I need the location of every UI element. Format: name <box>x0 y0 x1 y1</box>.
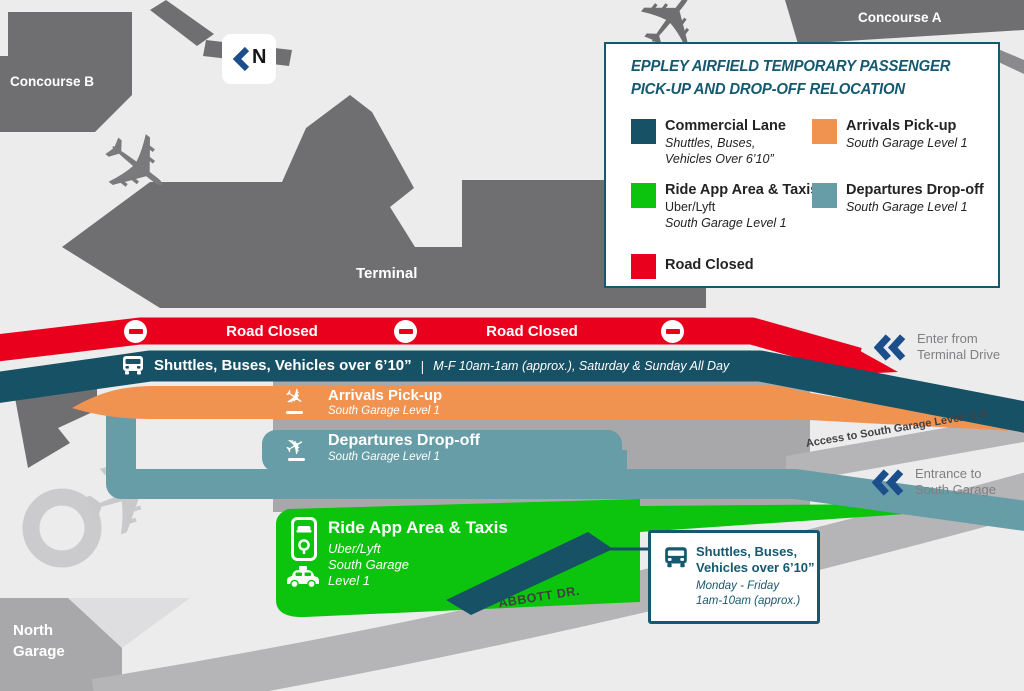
bus-icon <box>121 356 145 375</box>
rideapp-area-sub1: Uber/Lyft <box>328 541 381 556</box>
entrance-line2: South Garage <box>915 482 996 498</box>
commercial-band-divider: | <box>421 358 425 374</box>
no-entry-icon <box>124 320 147 343</box>
enter-from-terminal-text: Enter from Terminal Drive <box>917 331 1000 363</box>
arrivals-band-sub: South Garage Level 1 <box>328 405 440 417</box>
no-entry-icon <box>661 320 684 343</box>
north-indicator: N <box>222 34 276 84</box>
legend-rideapp-label: Ride App Area & Taxis <box>665 182 818 198</box>
entrance-line1: Entrance to <box>915 466 996 482</box>
arrivals-band-label: Arrivals Pick-up <box>328 387 442 404</box>
bus-icon <box>663 547 689 568</box>
north-garage-label-line2: Garage <box>13 641 65 662</box>
callout-line1: Shuttles, Buses, <box>696 544 797 559</box>
commercial-band-label: Shuttles, Buses, Vehicles over 6’10” <box>154 357 412 374</box>
legend-title-line2: PICK-UP AND DROP-OFF RELOCATION <box>631 81 905 99</box>
callout-line2: Vehicles over 6’10” <box>696 560 815 575</box>
taxi-icon <box>286 566 320 589</box>
north-garage-label: North Garage <box>13 620 65 662</box>
legend-commercial-sub2: Vehicles Over 6’10” <box>665 152 774 168</box>
legend-rideapp-sub2: South Garage Level 1 <box>665 216 787 232</box>
commercial-band-hours: M-F 10am-1am (approx.), Saturday & Sunda… <box>433 359 729 373</box>
legend-panel: EPPLEY AIRFIELD TEMPORARY PASSENGER PICK… <box>604 42 1000 288</box>
legend-road-closed-label: Road Closed <box>665 257 754 273</box>
callout-line4: 1am-10am (approx.) <box>696 595 800 607</box>
terminal-label: Terminal <box>356 265 417 282</box>
rideapp-area-label: Ride App Area & Taxis <box>328 518 508 538</box>
airport-relocation-map: ✈ ✈ ✈ ✈ <box>0 0 1024 691</box>
rideapp-area-sub2: South Garage <box>328 557 409 572</box>
entrance-south-garage-text: Entrance to South Garage <box>915 466 996 498</box>
entrance-south-garage-annotation: Entrance to South Garage <box>872 466 996 498</box>
legend-arrivals-label: Arrivals Pick-up <box>846 118 956 134</box>
no-entry-icon <box>394 320 417 343</box>
double-chevron-left-icon <box>874 334 908 361</box>
callout-line3: Monday - Friday <box>696 580 779 592</box>
enter-line1: Enter from <box>917 331 1000 347</box>
legend-commercial-sub1: Shuttles, Buses, <box>665 136 755 152</box>
concourse-a-label: Concourse A <box>858 10 942 25</box>
road-closed-label-left: Road Closed <box>226 323 318 340</box>
commercial-band-row: Shuttles, Buses, Vehicles over 6’10” | M… <box>121 356 729 375</box>
rideapp-phone-icon <box>291 517 317 561</box>
legend-departures-sub1: South Garage Level 1 <box>846 200 968 216</box>
road-closed-label-right: Road Closed <box>486 323 578 340</box>
enter-line2: Terminal Drive <box>917 347 1000 363</box>
legend-swatch-rideapp <box>631 183 656 208</box>
legend-swatch-arrivals <box>812 119 837 144</box>
rideapp-area-sub3: Level 1 <box>328 573 370 588</box>
enter-from-terminal-annotation: Enter from Terminal Drive <box>874 331 1000 363</box>
legend-departures-label: Departures Drop-off <box>846 182 984 198</box>
legend-swatch-road-closed <box>631 254 656 279</box>
legend-swatch-departures <box>812 183 837 208</box>
departures-band-sub: South Garage Level 1 <box>328 451 440 463</box>
north-garage-label-line1: North <box>13 620 65 641</box>
commercial-callout: Shuttles, Buses, Vehicles over 6’10” Mon… <box>648 530 820 624</box>
concourse-b-label: Concourse B <box>10 74 94 89</box>
double-chevron-left-icon <box>872 469 906 496</box>
jet-bridge-shape <box>150 0 214 46</box>
plane-landing-icon-ground <box>286 411 303 414</box>
north-letter: N <box>252 46 266 69</box>
legend-commercial-label: Commercial Lane <box>665 118 786 134</box>
concourse-b-shape <box>0 12 132 132</box>
legend-rideapp-sub1: Uber/Lyft <box>665 200 715 216</box>
departures-band-label: Departures Drop-off <box>328 432 480 450</box>
legend-title-line1: EPPLEY AIRFIELD TEMPORARY PASSENGER <box>631 58 950 76</box>
legend-swatch-commercial <box>631 119 656 144</box>
plane-takeoff-icon-ground <box>288 458 305 461</box>
legend-arrivals-sub1: South Garage Level 1 <box>846 136 968 152</box>
north-chevron-icon <box>232 46 250 72</box>
